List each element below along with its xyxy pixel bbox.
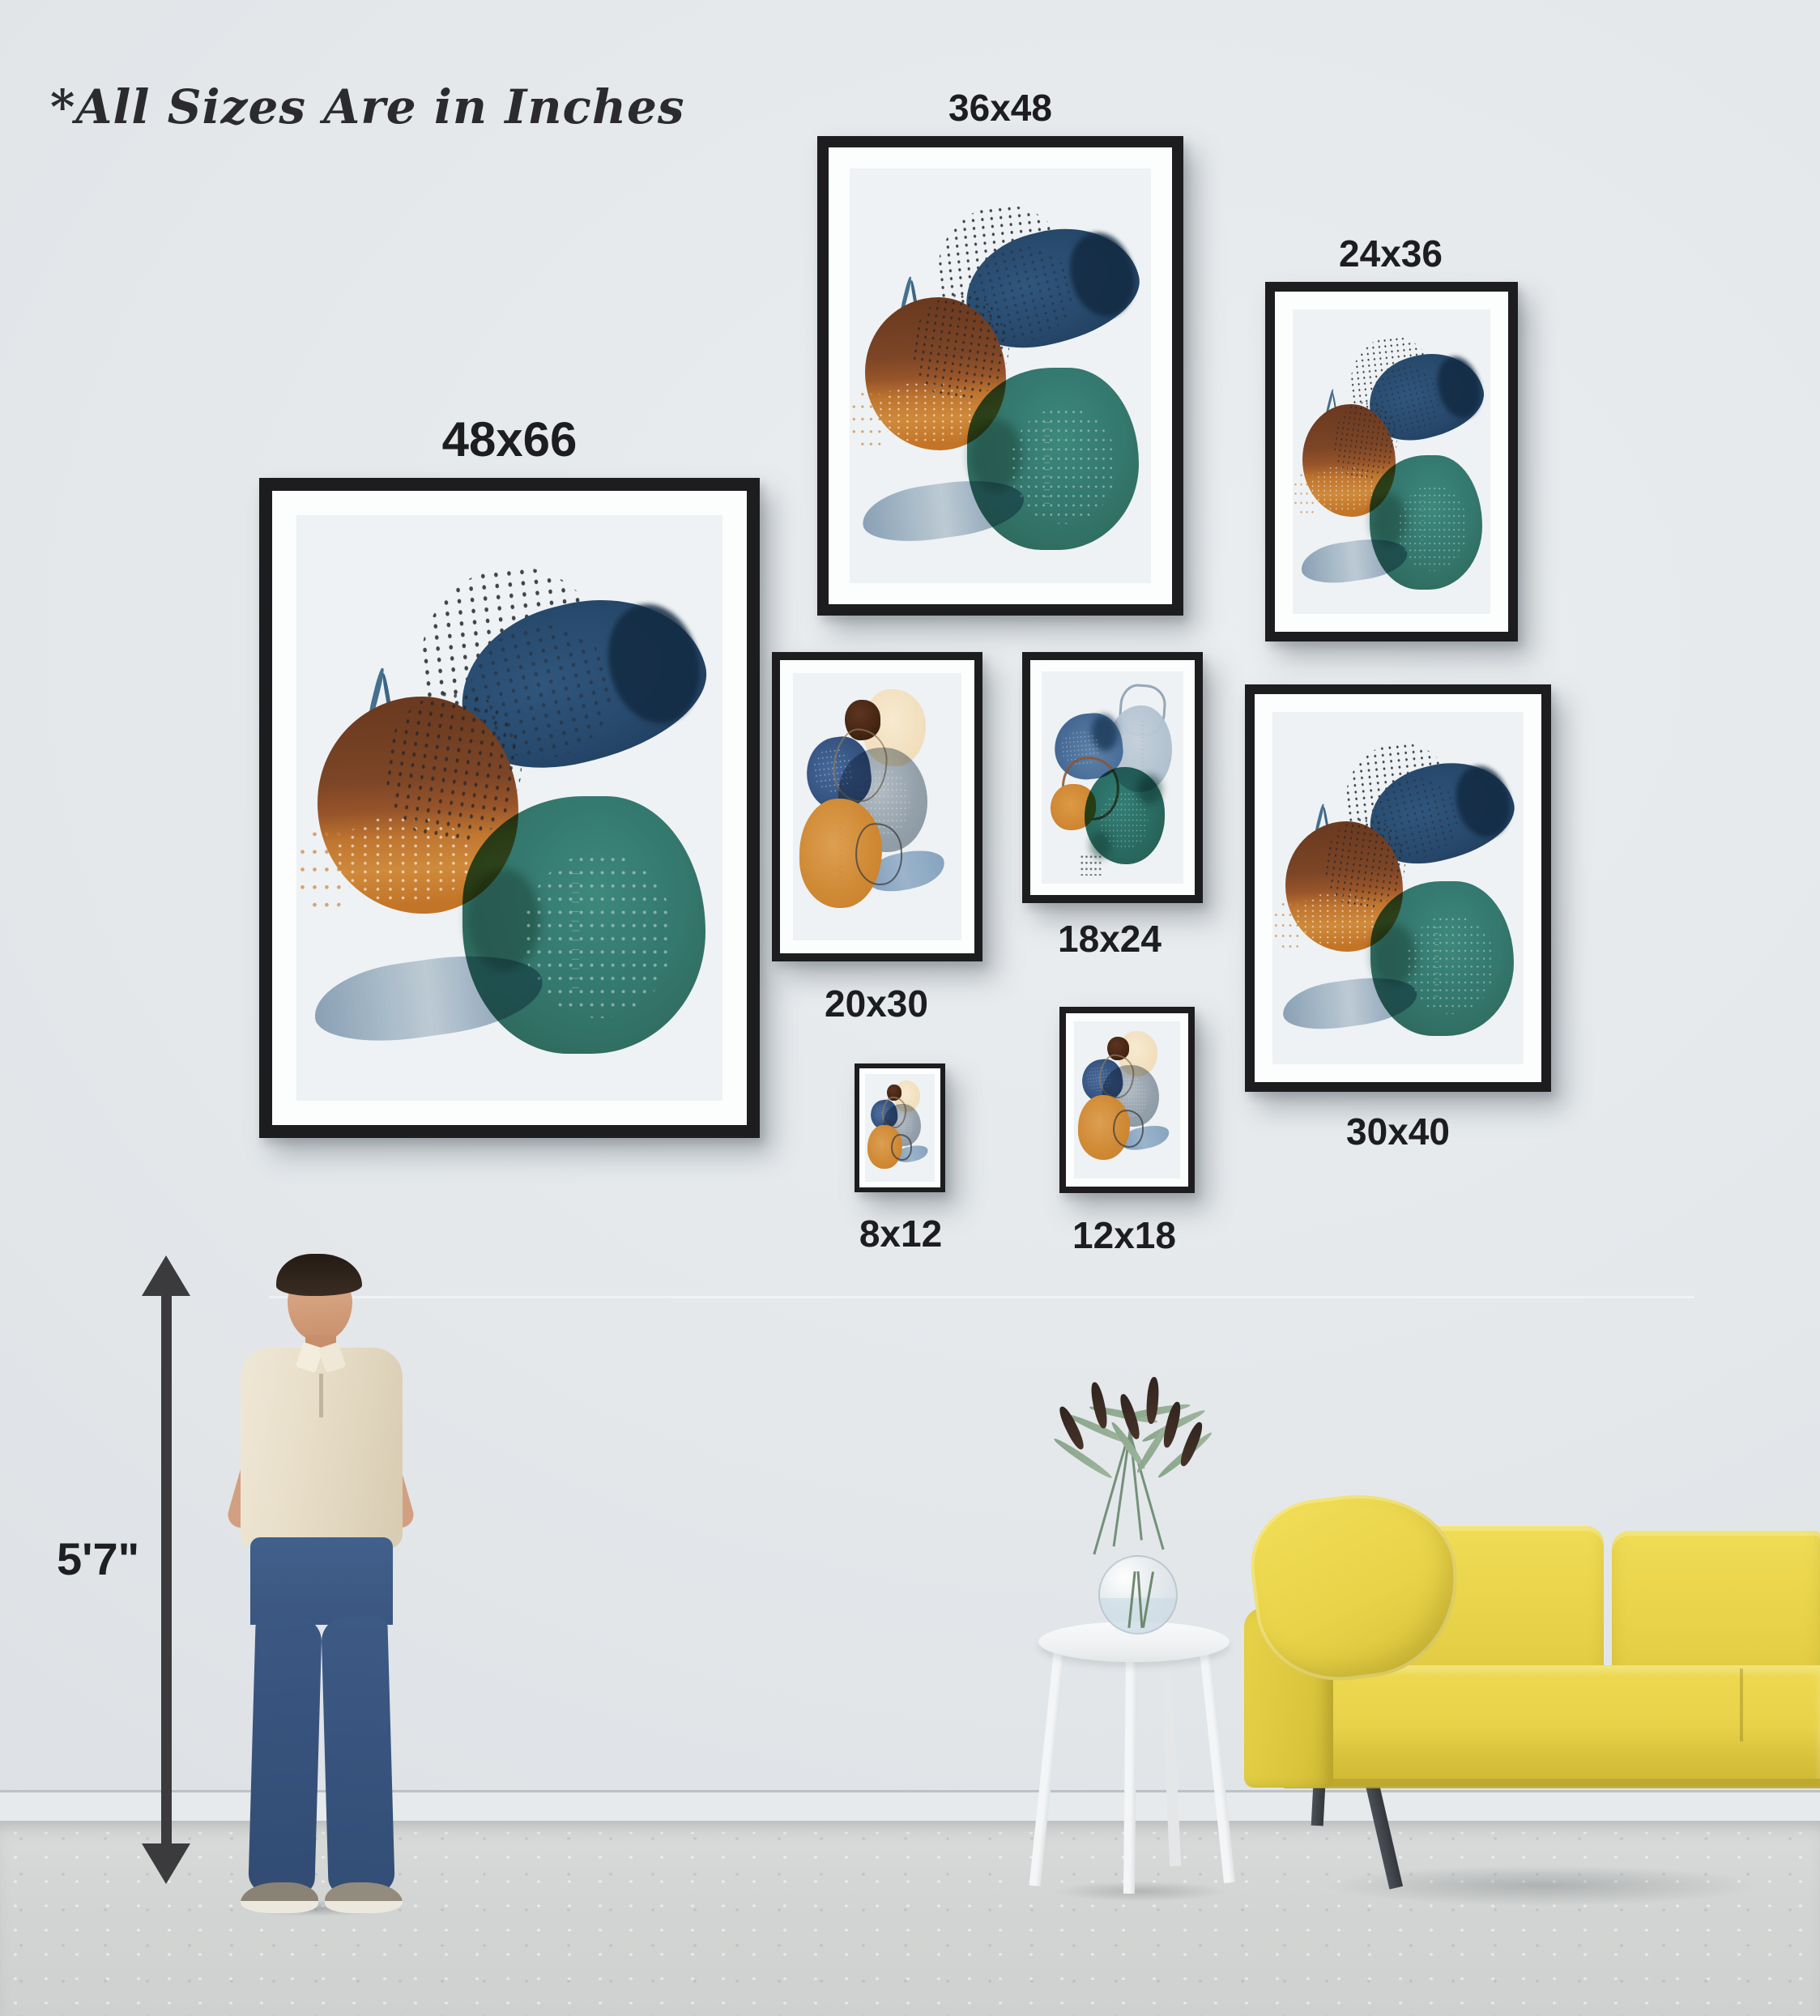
person-hair xyxy=(276,1254,362,1296)
frame-36x48 xyxy=(817,136,1183,616)
person-height-label: 5'7" xyxy=(57,1532,139,1585)
plant-stem xyxy=(1093,1437,1128,1554)
navy-blob-dark-patch xyxy=(1431,352,1486,423)
person-jeans xyxy=(250,1537,393,1625)
artwork-abstract xyxy=(296,515,722,1101)
table-shadow xyxy=(1027,1877,1254,1905)
tiny-vertical-text xyxy=(1141,721,1147,771)
tiny-vertical-text xyxy=(1421,496,1431,557)
size-label-18x24: 18x24 xyxy=(1058,917,1161,961)
frame-24x36 xyxy=(1265,282,1518,641)
size-label-20x30: 20x30 xyxy=(825,982,928,1025)
artwork-abstract xyxy=(1272,712,1524,1064)
reference-person xyxy=(198,1254,443,1916)
artwork-abstract xyxy=(1293,309,1490,614)
speckles xyxy=(1406,915,1495,1014)
tiny-vertical-text xyxy=(572,873,594,991)
frame-18x24 xyxy=(1022,652,1203,903)
arrow-down-icon xyxy=(142,1843,190,1884)
units-note: *All Sizes Are in Inches xyxy=(50,79,685,134)
shirt-placket xyxy=(319,1374,323,1417)
glass-vase xyxy=(1098,1555,1178,1635)
tiny-vertical-text xyxy=(884,1134,888,1158)
frame-48x66 xyxy=(259,478,760,1138)
frame-8x12 xyxy=(855,1063,945,1192)
sofa-leg xyxy=(1311,1785,1326,1826)
vase-water xyxy=(1100,1598,1176,1633)
artwork-abstract xyxy=(850,168,1151,583)
height-guide-line xyxy=(269,1296,1694,1298)
tiny-vertical-text xyxy=(1103,1110,1108,1145)
person-jeans-leg xyxy=(248,1616,322,1895)
frame-30x40 xyxy=(1245,684,1551,1092)
size-label-12x18: 12x18 xyxy=(1072,1213,1176,1257)
artwork-abstract xyxy=(793,673,961,940)
arrow-up-icon xyxy=(142,1255,190,1296)
sofa-base-rail xyxy=(1284,1779,1820,1788)
wall-art-size-chart: *All Sizes Are in Inches 48x66 36x48 xyxy=(0,0,1820,2016)
wheat-spike xyxy=(1145,1377,1160,1425)
sofa-shadow xyxy=(1264,1860,1820,1912)
dot-cluster xyxy=(1080,854,1102,875)
speckles xyxy=(1100,791,1149,850)
size-label-30x40: 30x40 xyxy=(1346,1110,1450,1153)
frame-12x18 xyxy=(1059,1007,1195,1193)
teal-blob xyxy=(967,368,1139,550)
sofa-seat-seam xyxy=(1740,1669,1743,1741)
plant xyxy=(1043,1377,1230,1568)
navy-blob-dark-patch xyxy=(596,595,711,734)
size-label-24x36: 24x36 xyxy=(1339,232,1443,275)
frame-20x30 xyxy=(772,652,982,961)
teal-circle xyxy=(1085,767,1166,865)
teal-blob xyxy=(1370,455,1482,589)
measurement-arrow-shaft xyxy=(161,1291,172,1850)
navy-blob-dark-patch xyxy=(1062,225,1144,323)
size-label-36x48: 36x48 xyxy=(948,86,1052,130)
artwork-abstract xyxy=(1042,671,1183,884)
orange-speckles xyxy=(1272,899,1305,952)
person-jeans-leg xyxy=(321,1616,395,1895)
orange-speckles xyxy=(1293,471,1319,516)
person-sneaker xyxy=(241,1882,318,1913)
speckles xyxy=(1010,407,1116,524)
speckles xyxy=(1398,485,1468,571)
person-sneaker xyxy=(325,1882,403,1913)
tiny-vertical-text xyxy=(1434,927,1447,999)
tiny-vertical-text xyxy=(1044,422,1059,506)
artwork-abstract xyxy=(1074,1021,1180,1178)
size-label-8x12: 8x12 xyxy=(859,1212,942,1255)
size-label-48x66: 48x66 xyxy=(442,411,578,467)
speckles xyxy=(523,853,674,1018)
teal-blob xyxy=(1370,881,1514,1036)
tiny-vertical-text xyxy=(839,823,846,883)
artwork-abstract xyxy=(865,1074,935,1182)
orange-speckles xyxy=(296,825,352,913)
teal-blob xyxy=(462,796,705,1054)
navy-blob-dark-patch xyxy=(1449,761,1517,843)
orange-speckles xyxy=(850,388,889,450)
